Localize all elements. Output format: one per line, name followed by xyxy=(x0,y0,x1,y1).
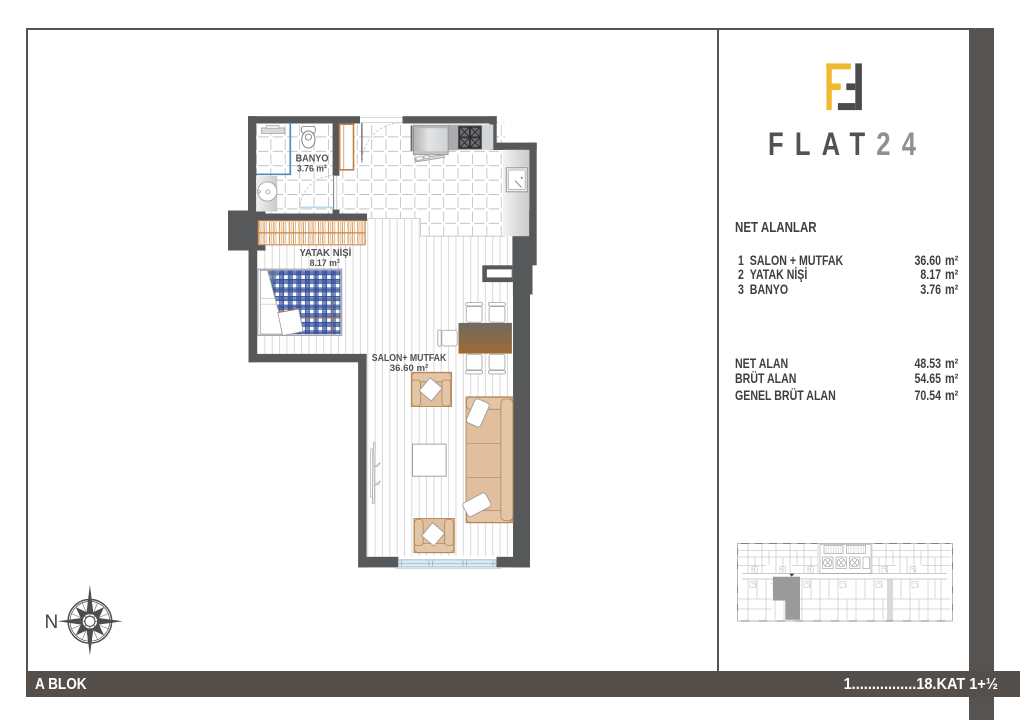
svg-text:8.17 m²: 8.17 m² xyxy=(310,258,340,269)
svg-text:3.76 m²: 3.76 m² xyxy=(297,163,327,174)
